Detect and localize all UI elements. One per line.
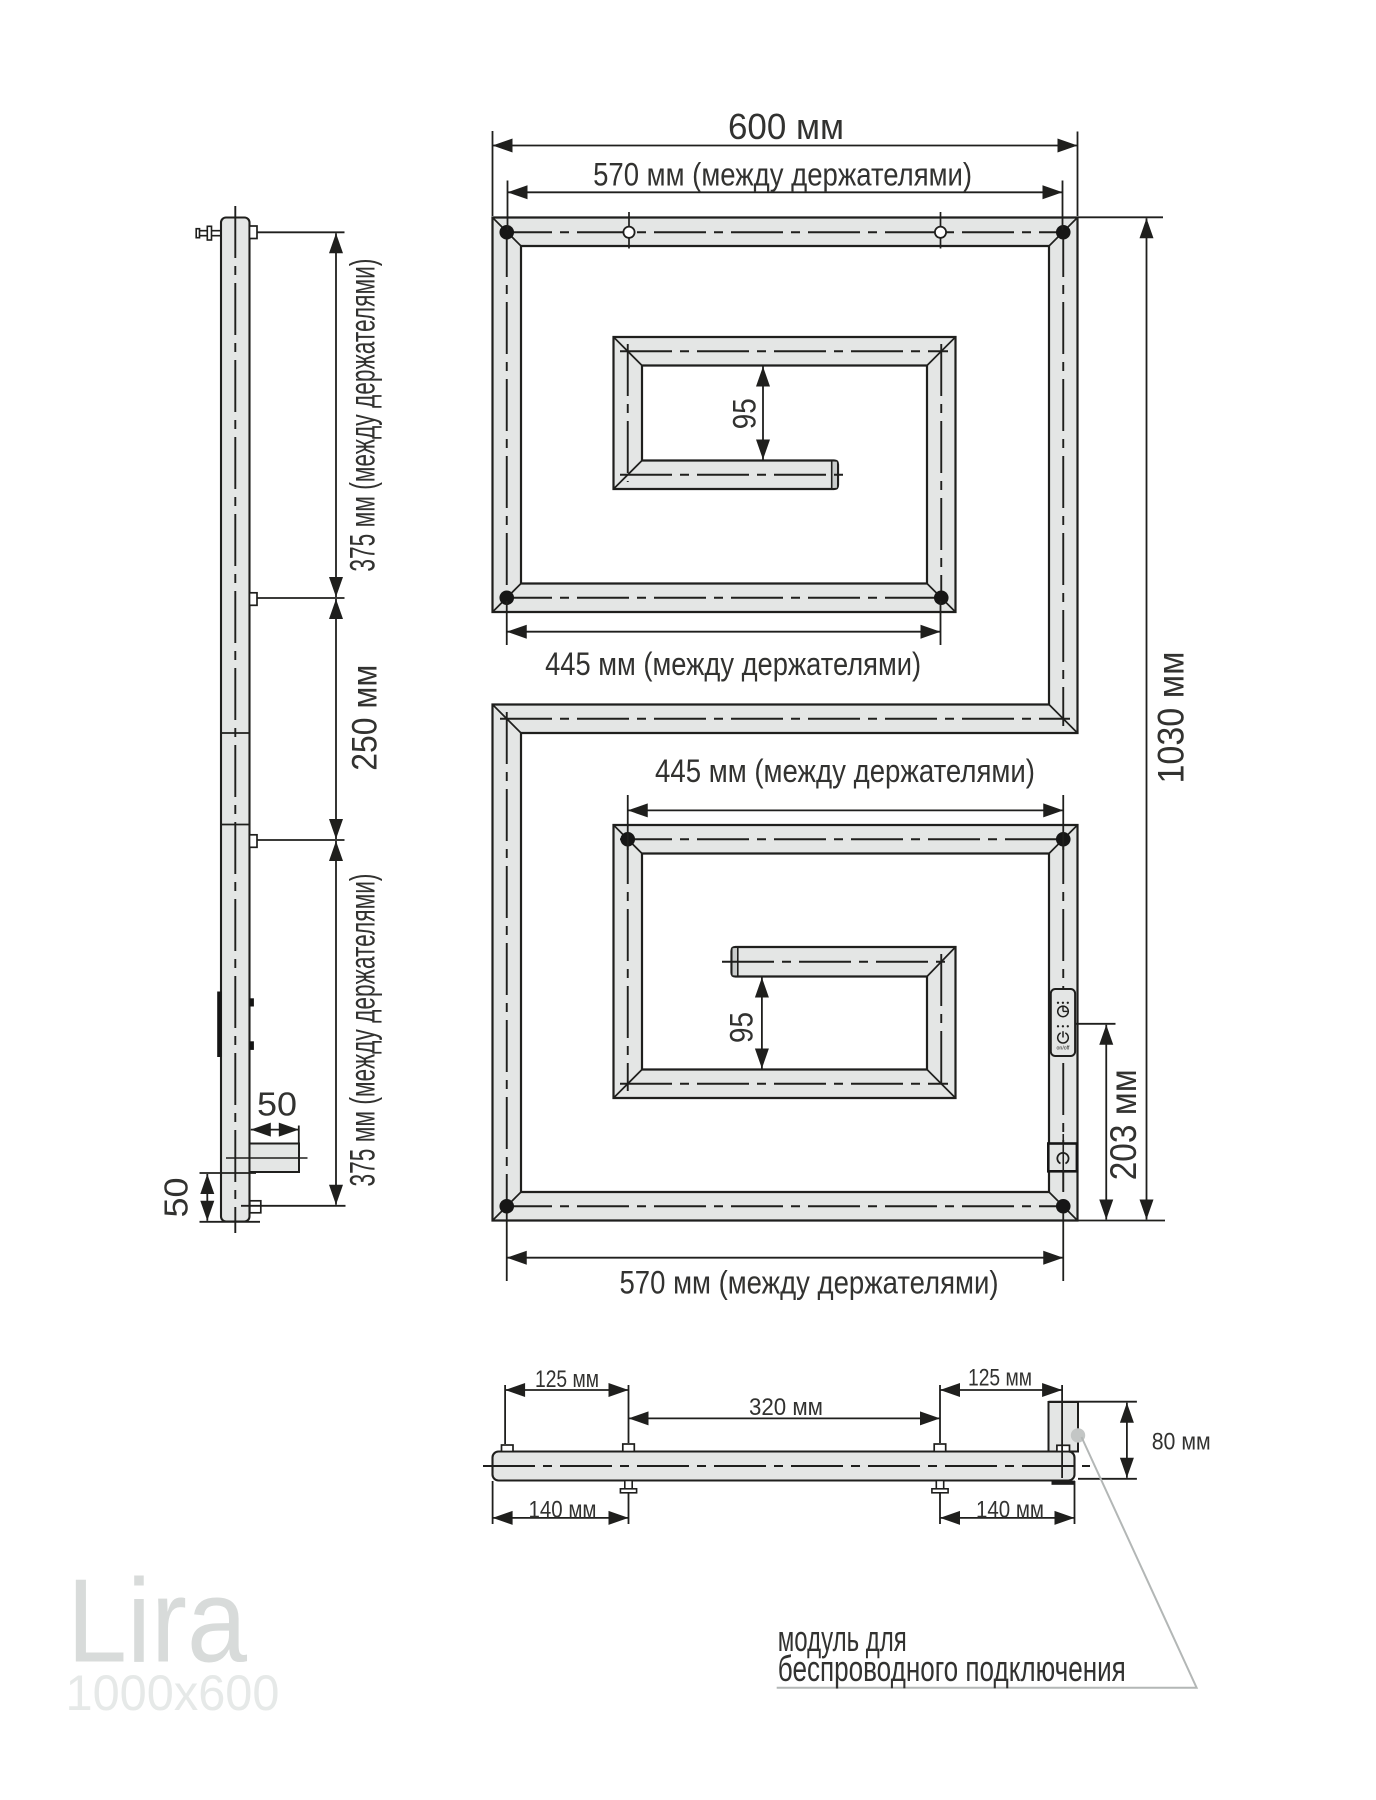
svg-text:95: 95 [727, 398, 763, 429]
svg-text:375 мм (между держателями): 375 мм (между держателями) [344, 874, 383, 1187]
svg-text:беспроводного подключения: беспроводного подключения [778, 1648, 1126, 1689]
svg-text:50: 50 [257, 1085, 297, 1122]
svg-text:375 мм (между держателями): 375 мм (между держателями) [344, 259, 383, 572]
svg-text:600 мм: 600 мм [728, 106, 844, 147]
svg-text:445 мм (между держателями): 445 мм (между держателями) [545, 646, 921, 682]
svg-text:570 мм (между держателями): 570 мм (между держателями) [593, 157, 972, 193]
svg-text:1000x600: 1000x600 [66, 1664, 280, 1721]
svg-text:445 мм (между держателями): 445 мм (между держателями) [655, 753, 1035, 789]
svg-text:250 мм: 250 мм [346, 665, 385, 771]
svg-text:125 мм: 125 мм [535, 1366, 599, 1393]
svg-text:140 мм: 140 мм [976, 1497, 1044, 1524]
svg-text:140 мм: 140 мм [529, 1497, 597, 1524]
svg-text:80 мм: 80 мм [1152, 1429, 1211, 1456]
svg-text:on/off: on/off [1057, 1046, 1070, 1052]
svg-text:125 мм: 125 мм [968, 1365, 1032, 1392]
svg-text:320 мм: 320 мм [749, 1394, 823, 1421]
svg-text:95: 95 [724, 1012, 760, 1043]
svg-text:203 мм: 203 мм [1103, 1069, 1144, 1180]
svg-text:50: 50 [158, 1178, 195, 1218]
svg-text:1030 мм: 1030 мм [1150, 652, 1191, 784]
svg-text:570 мм (между держателями): 570 мм (между держателями) [620, 1265, 999, 1301]
